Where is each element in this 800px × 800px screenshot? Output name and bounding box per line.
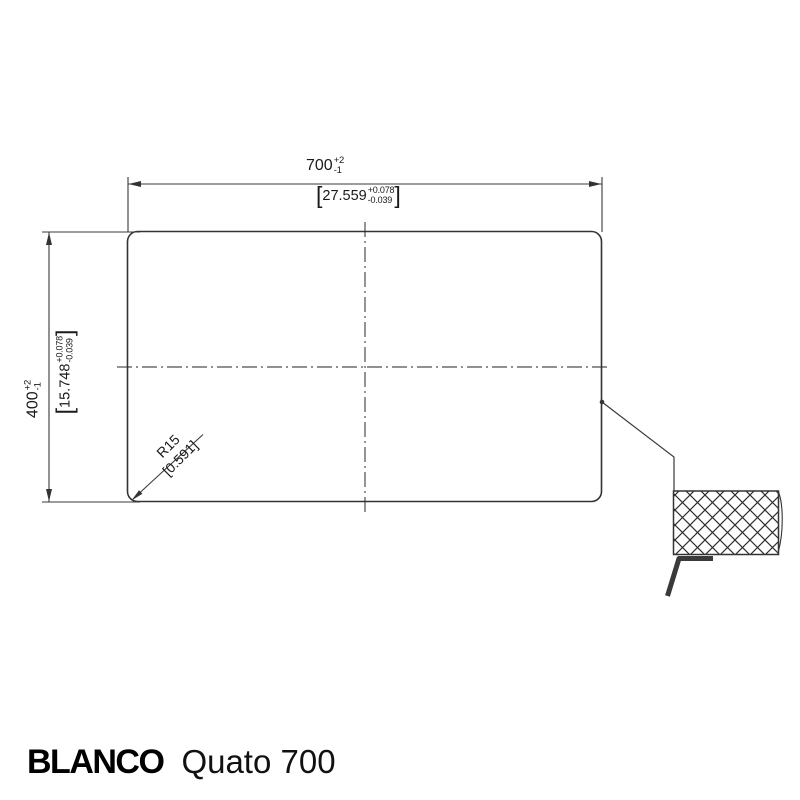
top-imperial-value: 27.559 bbox=[322, 189, 366, 204]
brand-logo: BLANCO bbox=[27, 743, 163, 782]
left-dimension-imperial: [ 15.748 +0.078 -0.039 ] bbox=[56, 330, 77, 415]
left-metric-value: 400 bbox=[26, 391, 42, 418]
open-bracket: [ bbox=[55, 408, 76, 414]
product-model: Quato 700 bbox=[181, 743, 335, 781]
countertop-section bbox=[674, 491, 779, 555]
left-dimension-arrow-top bbox=[46, 233, 52, 246]
top-dimension-arrow-left bbox=[129, 181, 142, 187]
technical-drawing-page: 700 +2 -1 [ 27.559 +0.078 -0.039 ] 400 +… bbox=[0, 0, 800, 800]
close-bracket: ] bbox=[55, 330, 76, 336]
left-imperial-value: 15.748 bbox=[59, 364, 74, 408]
top-metric-tolerance: +2 -1 bbox=[334, 156, 344, 177]
left-metric-tolerance: +2 -1 bbox=[24, 380, 45, 390]
left-dimension-metric: 400 +2 -1 bbox=[24, 380, 45, 418]
technical-drawing-canvas bbox=[0, 0, 800, 800]
left-dimension-arrow-bottom bbox=[46, 489, 52, 502]
open-bracket: [ bbox=[316, 185, 322, 206]
sink-rim-profile bbox=[668, 559, 714, 597]
top-imperial-tolerance: +0.078 -0.039 bbox=[368, 186, 395, 206]
footer: BLANCO Quato 700 bbox=[27, 743, 336, 782]
top-metric-value: 700 bbox=[306, 158, 333, 174]
top-dimension-arrow-right bbox=[589, 181, 602, 187]
close-bracket: ] bbox=[394, 185, 400, 206]
top-dimension-imperial: [ 27.559 +0.078 -0.039 ] bbox=[316, 186, 401, 207]
top-dimension-metric: 700 +2 -1 bbox=[306, 156, 344, 177]
left-imperial-tolerance: +0.078 -0.039 bbox=[56, 336, 76, 363]
section-leader-line bbox=[602, 402, 674, 491]
